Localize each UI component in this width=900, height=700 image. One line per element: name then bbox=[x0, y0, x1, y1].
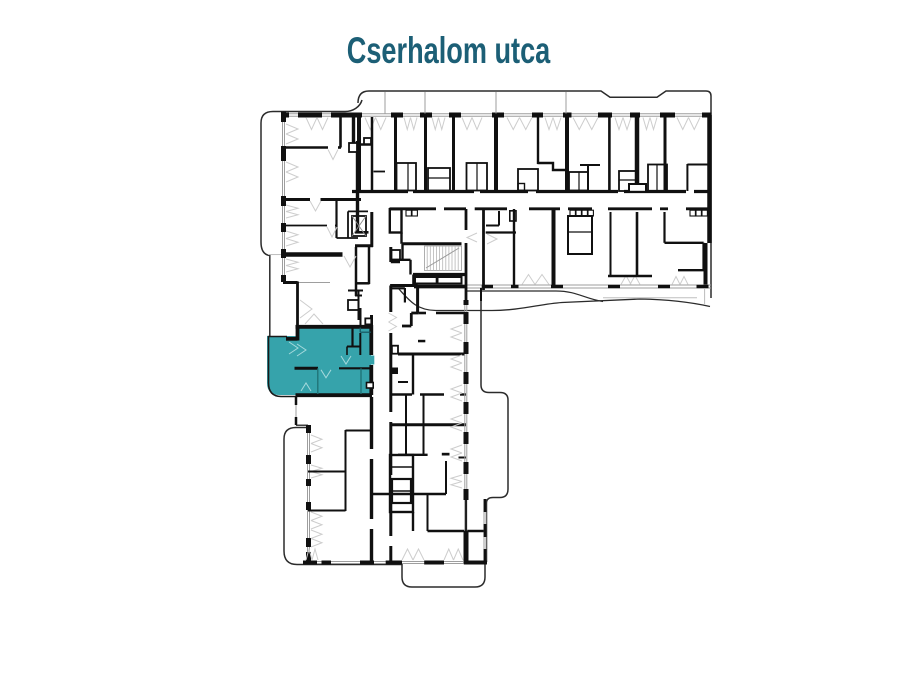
svg-text:Cserhalom utca: Cserhalom utca bbox=[347, 29, 551, 71]
